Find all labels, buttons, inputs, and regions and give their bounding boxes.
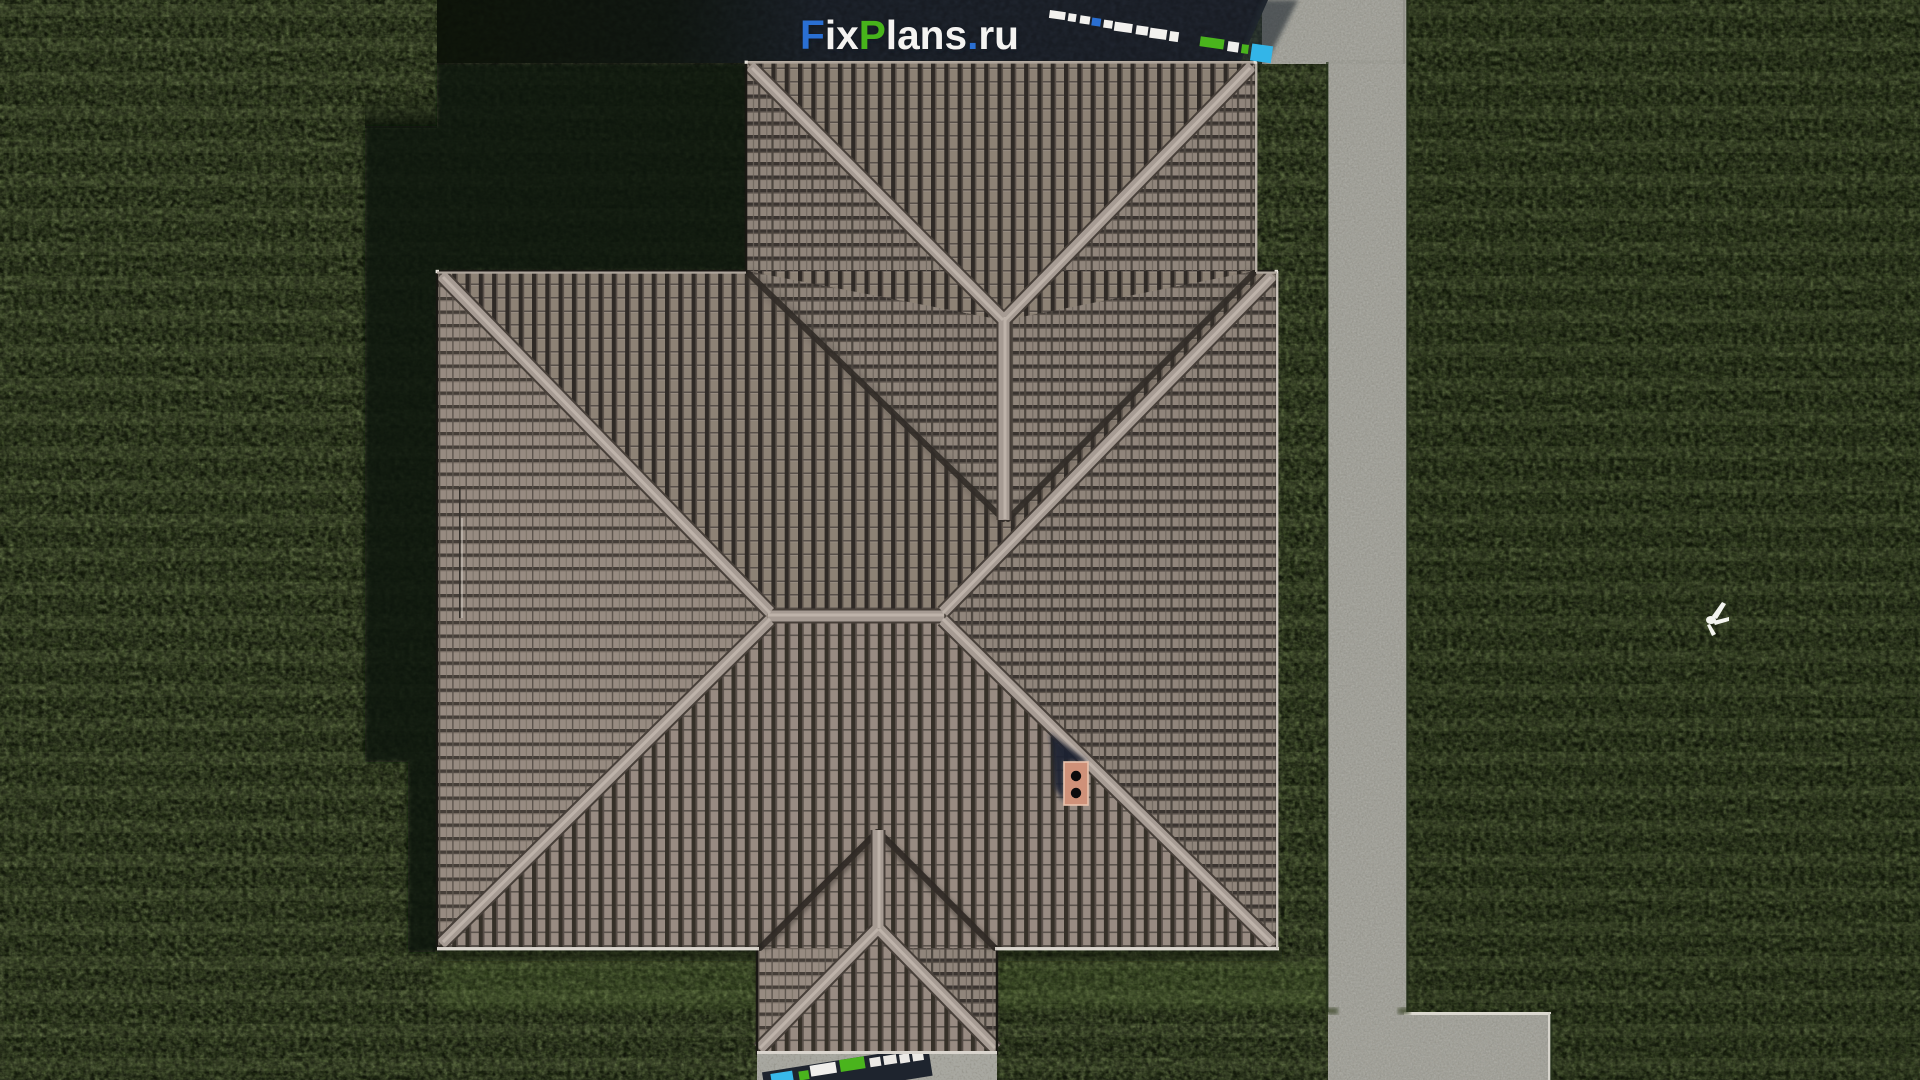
svg-text:FixPlans.ru: FixPlans.ru [800,12,1019,58]
